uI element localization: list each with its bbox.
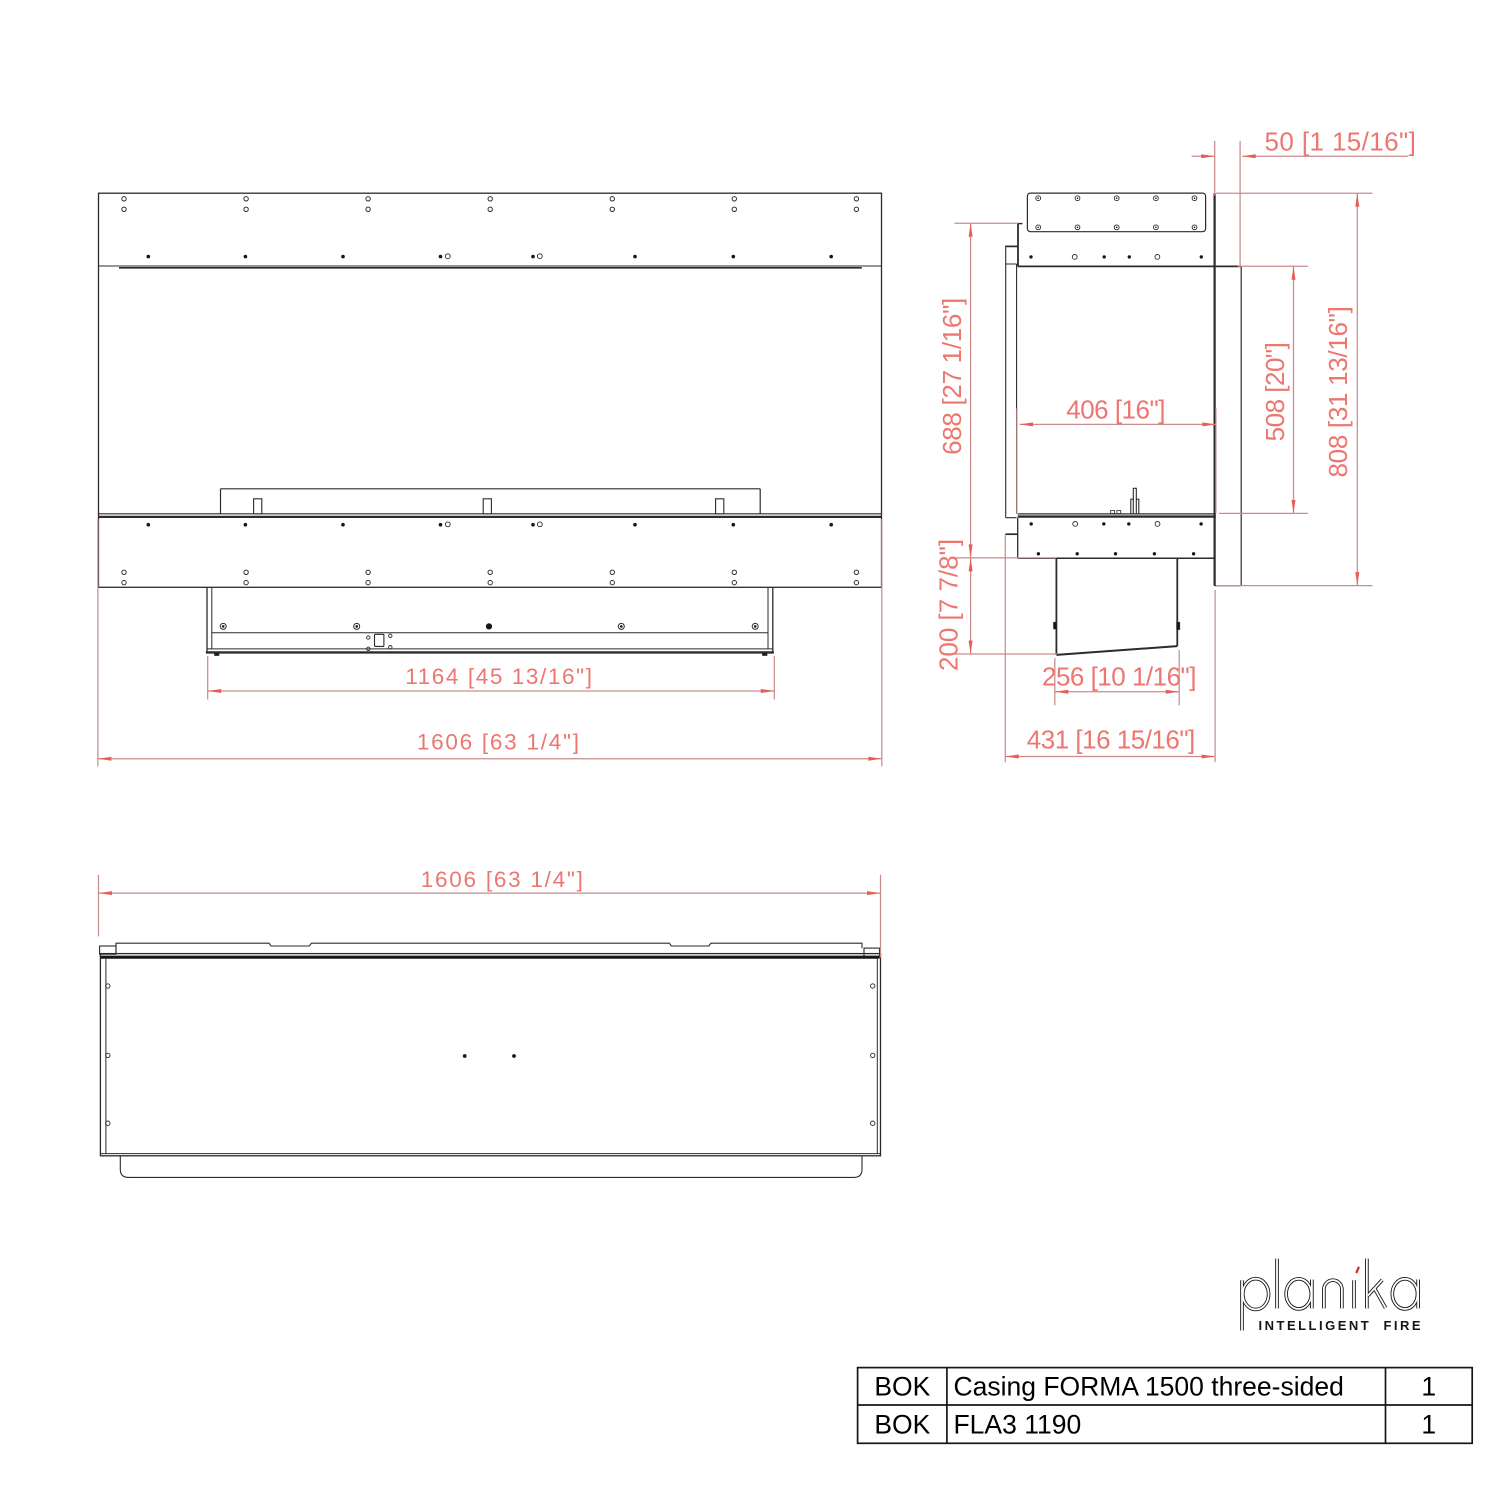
svg-text:431 [16 15/16"]: 431 [16 15/16"]	[1027, 725, 1195, 755]
svg-text:1: 1	[1421, 1372, 1436, 1402]
svg-text:256 [10 1/16"]: 256 [10 1/16"]	[1042, 662, 1196, 692]
svg-text:200 [7 7/8"]: 200 [7 7/8"]	[934, 539, 964, 671]
svg-text:688 [27 1/16"]: 688 [27 1/16"]	[937, 298, 967, 455]
svg-text:808 [31 13/16"]: 808 [31 13/16"]	[1323, 307, 1353, 478]
svg-text:1: 1	[1421, 1410, 1436, 1440]
svg-text:BOK: BOK	[874, 1372, 930, 1402]
svg-text:Casing FORMA 1500 three-sided: Casing FORMA 1500 three-sided	[954, 1372, 1344, 1402]
svg-text:50 [1 15/16"]: 50 [1 15/16"]	[1265, 127, 1417, 157]
svg-text:406 [16"]: 406 [16"]	[1066, 395, 1165, 425]
svg-text:FLA3 1190: FLA3 1190	[954, 1410, 1082, 1440]
svg-text:1606 [63 1/4"]: 1606 [63 1/4"]	[417, 729, 581, 754]
svg-text:1164 [45 13/16"]: 1164 [45 13/16"]	[405, 664, 593, 689]
svg-text:1606 [63 1/4"]: 1606 [63 1/4"]	[421, 867, 585, 892]
svg-text:508 [20"]: 508 [20"]	[1260, 343, 1290, 442]
svg-text:BOK: BOK	[874, 1410, 930, 1440]
svg-text:INTELLIGENT FIRE: INTELLIGENT FIRE	[1259, 1318, 1424, 1333]
